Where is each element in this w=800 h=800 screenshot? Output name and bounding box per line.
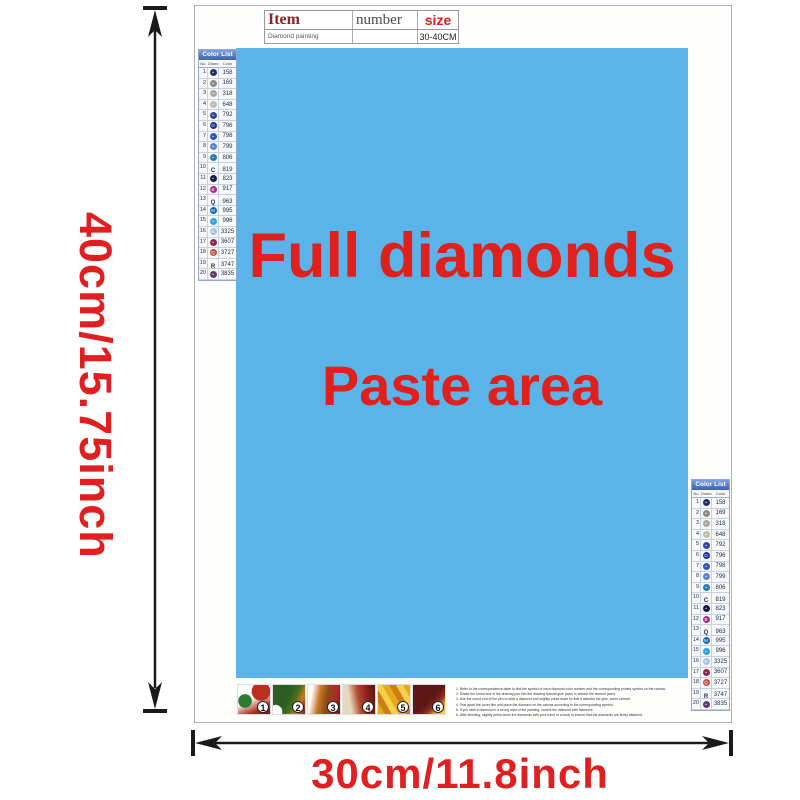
step-thumbnail: 1 bbox=[237, 684, 271, 715]
color-list-row: 16K3325 bbox=[199, 227, 236, 238]
color-code: 169 bbox=[219, 80, 236, 86]
color-symbol-circle: • bbox=[703, 520, 710, 527]
color-list-row-number: 3 bbox=[692, 519, 701, 529]
color-list-row-number: 9 bbox=[199, 153, 208, 163]
color-symbol-cell: • bbox=[701, 498, 712, 508]
color-symbol-circle: • bbox=[210, 90, 217, 97]
color-symbol-circle: Q bbox=[210, 249, 217, 256]
color-list-row-number: 7 bbox=[692, 562, 701, 572]
paste-area-title-line1: Full diamonds bbox=[236, 220, 688, 292]
color-symbol-cell: • bbox=[208, 79, 219, 89]
step-thumbnail: 2 bbox=[272, 684, 306, 715]
color-list-row: 6O796 bbox=[692, 551, 729, 562]
color-symbol-circle: K bbox=[210, 228, 217, 235]
color-list-row-number: 2 bbox=[199, 79, 208, 89]
color-list-row: 2•169 bbox=[199, 79, 236, 90]
color-symbol-circle: • bbox=[210, 133, 217, 140]
color-list-row: 3•318 bbox=[692, 519, 729, 530]
color-list-row-number: 18 bbox=[199, 248, 208, 258]
color-list-row-number: 2 bbox=[692, 509, 701, 519]
color-list-row: 7•798 bbox=[199, 132, 236, 143]
color-list-row: 11•823 bbox=[692, 604, 729, 615]
color-list-row-number: 11 bbox=[199, 174, 208, 184]
color-symbol-cell: • bbox=[208, 142, 219, 152]
instructions-text: 1. Refer to the correspondence table to … bbox=[456, 687, 704, 718]
color-code: 3325 bbox=[712, 659, 729, 665]
color-code: 158 bbox=[219, 70, 236, 76]
color-list-row: 14M995 bbox=[199, 206, 236, 217]
color-code: 806 bbox=[219, 155, 236, 161]
color-list-row-number: 15 bbox=[199, 216, 208, 226]
color-symbol-circle: B bbox=[210, 186, 217, 193]
color-list-row: 19R3747 bbox=[199, 259, 236, 270]
color-symbol-circle: • bbox=[210, 271, 217, 278]
color-list-row: 12B917 bbox=[692, 615, 729, 626]
step-thumbnail: 5 bbox=[377, 684, 411, 715]
color-symbol-circle: • bbox=[703, 605, 710, 612]
color-symbol-circle: O bbox=[703, 552, 710, 559]
color-symbol-circle: • bbox=[703, 510, 710, 517]
color-list-header: Color bbox=[219, 61, 236, 66]
color-list-title: Color List bbox=[199, 50, 236, 60]
color-symbol-cell: • bbox=[701, 572, 712, 582]
color-code: 3607 bbox=[712, 669, 729, 675]
color-list-row-number: 3 bbox=[199, 89, 208, 99]
color-symbol-circle: • bbox=[210, 112, 217, 119]
item-table-product-name: Diamond painting bbox=[265, 30, 353, 43]
color-symbol-circle: • bbox=[210, 80, 217, 87]
color-symbol-circle: • bbox=[703, 542, 710, 549]
color-list-row: 8•799 bbox=[199, 142, 236, 153]
color-symbol-circle: M bbox=[210, 207, 217, 214]
color-code: 819 bbox=[712, 597, 729, 603]
color-list-header: Diamond bbox=[208, 61, 219, 66]
color-list-row-number: 4 bbox=[199, 100, 208, 110]
color-code: 819 bbox=[219, 167, 236, 173]
color-list-row-number: 1 bbox=[199, 68, 208, 78]
color-list-right: Color ListNo.DiamondColor1•1582•1693•318… bbox=[691, 479, 730, 711]
color-symbol-cell: • bbox=[208, 238, 219, 248]
item-table-header-item: Item bbox=[265, 11, 353, 29]
color-code: 996 bbox=[712, 648, 729, 654]
width-dimension-label: 30cm/11.8inch bbox=[290, 750, 630, 798]
item-table-number-value bbox=[353, 30, 418, 43]
color-list-row: 7•798 bbox=[692, 562, 729, 573]
color-list-title: Color List bbox=[692, 480, 729, 490]
color-list-row-number: 12 bbox=[199, 185, 208, 195]
color-list-row: 15•996 bbox=[199, 216, 236, 227]
color-code: 995 bbox=[219, 208, 236, 214]
color-list-header: No. bbox=[692, 491, 701, 496]
color-list-row: 5•792 bbox=[199, 110, 236, 121]
color-list-row: 12B917 bbox=[199, 185, 236, 196]
color-list-header-row: No.DiamondColor bbox=[692, 490, 729, 498]
color-list-row: 11•823 bbox=[199, 174, 236, 185]
color-code: 799 bbox=[219, 144, 236, 150]
instruction-line: 1. Refer to the correspondence table to … bbox=[456, 687, 704, 691]
instruction-line: 2. Shake the round end of the drawing pe… bbox=[456, 692, 704, 696]
step-number-badge: 4 bbox=[362, 701, 374, 713]
color-list-row: 4•648 bbox=[199, 100, 236, 111]
color-list-row-number: 16 bbox=[692, 657, 701, 667]
color-list-row: 16K3325 bbox=[692, 657, 729, 668]
step-thumbnail: 3 bbox=[307, 684, 341, 715]
color-list-row: 5•792 bbox=[692, 540, 729, 551]
color-code: 3325 bbox=[219, 229, 236, 235]
color-list-row-number: 6 bbox=[692, 551, 701, 561]
instruction-line: 5. If you stick a diamond in a wrong are… bbox=[456, 708, 704, 712]
color-symbol-cell: B bbox=[208, 185, 219, 195]
color-list-row: 9•806 bbox=[199, 153, 236, 164]
color-symbol-cell: B bbox=[701, 615, 712, 625]
color-symbol-circle: • bbox=[703, 584, 710, 591]
diamond-painting-product-image: 40cm/15.75inch 30cm/11.8inch Item number… bbox=[0, 0, 800, 800]
color-code: 648 bbox=[712, 532, 729, 538]
color-code: 917 bbox=[219, 186, 236, 192]
color-list-row: 17•3607 bbox=[692, 668, 729, 679]
color-code: 169 bbox=[712, 510, 729, 516]
color-symbol-circle: • bbox=[210, 154, 217, 161]
step-number-badge: 1 bbox=[257, 701, 269, 713]
color-code: 963 bbox=[712, 629, 729, 635]
step-number-badge: 6 bbox=[432, 701, 444, 713]
color-code: 796 bbox=[712, 553, 729, 559]
height-dimension-label: 40cm/15.75inch bbox=[67, 212, 123, 532]
color-symbol-circle: • bbox=[703, 531, 710, 538]
color-list-row-number: 7 bbox=[199, 132, 208, 142]
color-list-row-number: 14 bbox=[199, 206, 208, 216]
color-code: 3747 bbox=[712, 692, 729, 698]
color-code: 648 bbox=[219, 102, 236, 108]
canvas-sheet: Item number size Diamond painting 30-40C… bbox=[194, 5, 732, 723]
color-symbol-cell: • bbox=[208, 132, 219, 142]
color-list-row-number: 9 bbox=[692, 583, 701, 593]
color-symbol-cell: • bbox=[701, 519, 712, 529]
color-list-row: 10C819 bbox=[199, 163, 236, 174]
color-list-left: Color ListNo.DiamondColor1•1582•1693•318… bbox=[198, 49, 237, 281]
color-symbol-circle: • bbox=[703, 499, 710, 506]
color-list-row: 14M995 bbox=[692, 636, 729, 647]
color-code: 3727 bbox=[712, 680, 729, 686]
color-symbol-cell: • bbox=[208, 68, 219, 78]
color-symbol-circle: • bbox=[703, 669, 710, 676]
color-symbol-cell: O bbox=[208, 121, 219, 131]
color-list-row: 13Q963 bbox=[692, 625, 729, 636]
color-code: 792 bbox=[219, 112, 236, 118]
color-symbol-cell: • bbox=[701, 604, 712, 614]
color-symbol-cell: M bbox=[208, 206, 219, 216]
color-code: 823 bbox=[219, 176, 236, 182]
item-table-size-value: 30-40CM bbox=[418, 30, 458, 43]
color-code: 3727 bbox=[219, 250, 236, 256]
color-symbol-cell: K bbox=[208, 227, 219, 237]
color-symbol-circle: K bbox=[703, 658, 710, 665]
color-symbol-cell: • bbox=[208, 269, 219, 279]
color-code: 823 bbox=[712, 606, 729, 612]
instruction-line: 6. After finishing, slightly press down … bbox=[456, 713, 704, 717]
color-list-row-number: 15 bbox=[692, 646, 701, 656]
color-code: 799 bbox=[712, 574, 729, 580]
color-code: 3607 bbox=[219, 239, 236, 245]
color-symbol-cell: Q bbox=[208, 248, 219, 258]
color-code: 792 bbox=[712, 542, 729, 548]
color-symbol-circle: Q bbox=[703, 679, 710, 686]
step-number-badge: 5 bbox=[397, 701, 409, 713]
color-list-row: 13Q963 bbox=[199, 195, 236, 206]
color-code: 158 bbox=[712, 500, 729, 506]
color-list-row-number: 20 bbox=[199, 269, 208, 279]
color-code: 318 bbox=[712, 521, 729, 527]
instruction-line: 4. Tear apart the cover film and place t… bbox=[456, 703, 704, 707]
item-size-table: Item number size Diamond painting 30-40C… bbox=[264, 10, 459, 44]
color-symbol-circle: • bbox=[210, 101, 217, 108]
color-symbol-circle: M bbox=[703, 637, 710, 644]
color-list-row: 18Q3727 bbox=[199, 248, 236, 259]
color-list-row-number: 17 bbox=[199, 238, 208, 248]
color-code: 318 bbox=[219, 91, 236, 97]
color-list-row: 10C819 bbox=[692, 593, 729, 604]
color-symbol-circle: • bbox=[210, 143, 217, 150]
color-symbol-cell: • bbox=[701, 668, 712, 678]
color-list-header: No. bbox=[199, 61, 208, 66]
color-code: 996 bbox=[219, 218, 236, 224]
step-number-badge: 3 bbox=[327, 701, 339, 713]
step-thumbnail: 6 bbox=[412, 684, 446, 715]
color-symbol-cell: • bbox=[701, 509, 712, 519]
color-list-row-number: 12 bbox=[692, 615, 701, 625]
color-symbol-cell: K bbox=[701, 657, 712, 667]
color-list-row-number: 8 bbox=[199, 142, 208, 152]
height-dimension-arrow bbox=[139, 4, 171, 716]
color-symbol-cell: • bbox=[701, 583, 712, 593]
color-symbol-cell: • bbox=[701, 562, 712, 572]
color-list-row-number: 5 bbox=[692, 540, 701, 550]
color-symbol-cell: • bbox=[208, 153, 219, 163]
color-symbol-cell: • bbox=[208, 100, 219, 110]
item-table-header-size: size bbox=[418, 11, 458, 29]
color-symbol-circle: • bbox=[703, 563, 710, 570]
color-list-row: 3•318 bbox=[199, 89, 236, 100]
color-list-row: 15•996 bbox=[692, 646, 729, 657]
color-symbol-cell: • bbox=[208, 89, 219, 99]
color-symbol-circle: • bbox=[210, 239, 217, 246]
color-list-row: 17•3607 bbox=[199, 238, 236, 249]
color-list-header: Color bbox=[712, 491, 729, 496]
color-list-row: 20•3835 bbox=[199, 269, 236, 280]
step-thumbnail: 4 bbox=[342, 684, 376, 715]
color-list-row: 1•158 bbox=[692, 498, 729, 509]
color-list-row-number: 1 bbox=[692, 498, 701, 508]
color-symbol-circle: O bbox=[210, 122, 217, 129]
color-symbol-circle: • bbox=[210, 175, 217, 182]
step-thumbnails: 123456 bbox=[237, 684, 446, 715]
color-list-header: Diamond bbox=[701, 491, 712, 496]
color-list-row-number: 17 bbox=[692, 668, 701, 678]
color-symbol-cell: • bbox=[208, 174, 219, 184]
color-list-row: 9•806 bbox=[692, 583, 729, 594]
color-symbol-cell: • bbox=[208, 110, 219, 120]
color-symbol-cell: • bbox=[208, 216, 219, 226]
instruction-line: 3. Use the round end of the pen to stick… bbox=[456, 697, 704, 701]
color-list-row-number: 14 bbox=[692, 636, 701, 646]
paste-area: Full diamonds Paste area bbox=[236, 48, 688, 678]
color-symbol-circle: • bbox=[703, 648, 710, 655]
color-symbol-cell: • bbox=[701, 646, 712, 656]
color-code: 3835 bbox=[712, 701, 729, 707]
paste-area-title-line2: Paste area bbox=[236, 353, 688, 418]
color-list-row-number: 8 bbox=[692, 572, 701, 582]
color-code: 3835 bbox=[219, 271, 236, 277]
color-list-row-number: 11 bbox=[692, 604, 701, 614]
color-list-row-number: 4 bbox=[692, 530, 701, 540]
color-symbol-circle: • bbox=[210, 218, 217, 225]
color-list-row: 2•169 bbox=[692, 509, 729, 520]
color-symbol-cell: O bbox=[701, 551, 712, 561]
color-code: 798 bbox=[712, 563, 729, 569]
color-code: 963 bbox=[219, 199, 236, 205]
color-list-row: 8•799 bbox=[692, 572, 729, 583]
item-table-header-number: number bbox=[353, 11, 418, 29]
color-code: 995 bbox=[712, 638, 729, 644]
color-list-row-number: 16 bbox=[199, 227, 208, 237]
color-list-row-number: 6 bbox=[199, 121, 208, 131]
color-code: 917 bbox=[712, 616, 729, 622]
color-code: 3747 bbox=[219, 262, 236, 268]
color-list-row-number: 5 bbox=[199, 110, 208, 120]
color-symbol-cell: • bbox=[701, 540, 712, 550]
color-list-row: 1•158 bbox=[199, 68, 236, 79]
color-list-header-row: No.DiamondColor bbox=[199, 60, 236, 68]
color-symbol-circle: • bbox=[210, 69, 217, 76]
color-code: 798 bbox=[219, 133, 236, 139]
color-code: 806 bbox=[712, 585, 729, 591]
step-number-badge: 2 bbox=[292, 701, 304, 713]
color-symbol-cell: M bbox=[701, 636, 712, 646]
color-list-row: 6O796 bbox=[199, 121, 236, 132]
color-list-row: 4•648 bbox=[692, 530, 729, 541]
color-symbol-cell: • bbox=[701, 530, 712, 540]
color-code: 796 bbox=[219, 123, 236, 129]
color-symbol-circle: B bbox=[703, 616, 710, 623]
color-symbol-circle: • bbox=[703, 573, 710, 580]
